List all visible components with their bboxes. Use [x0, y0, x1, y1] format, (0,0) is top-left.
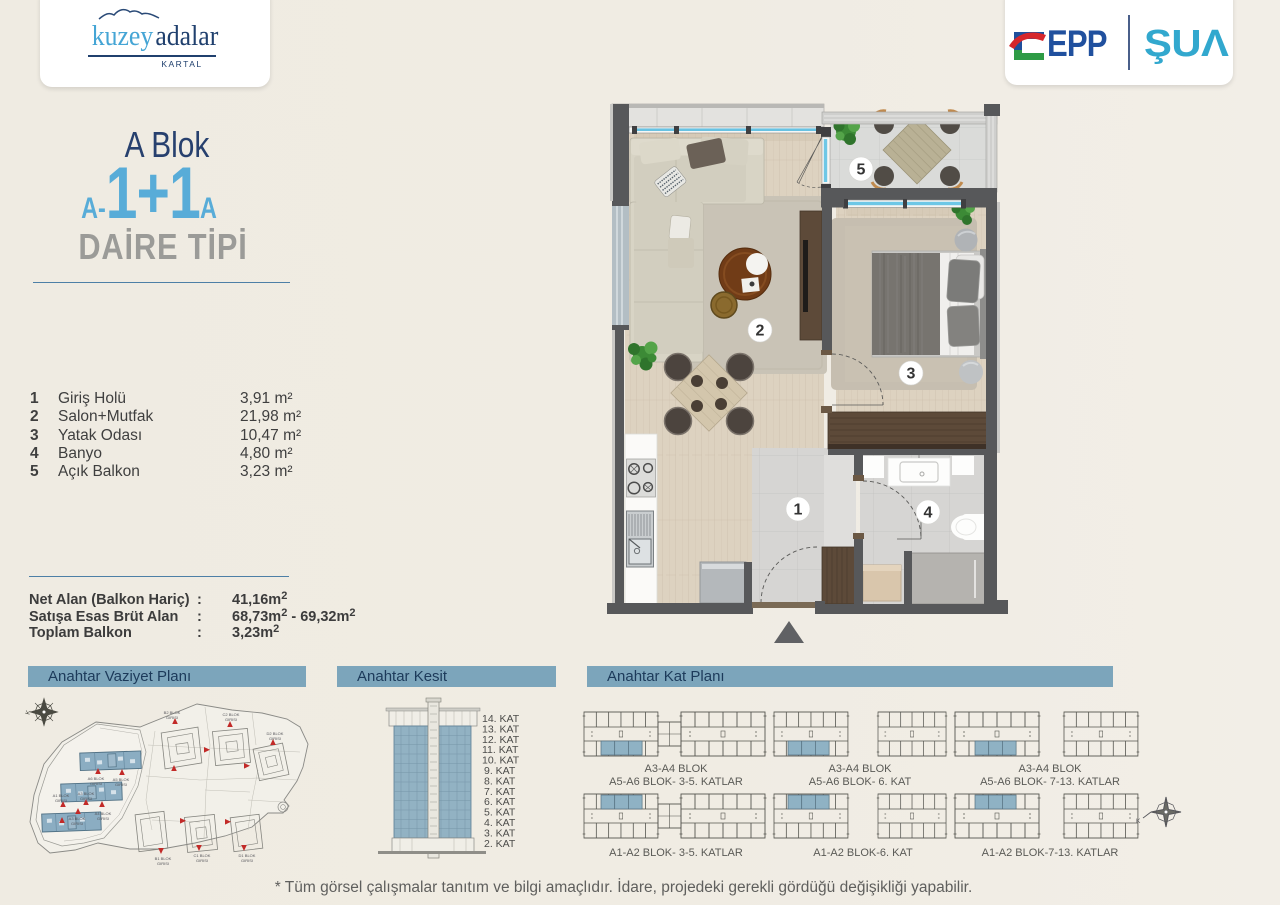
svg-text:GIRISI: GIRISI [71, 821, 83, 826]
svg-text:GIRISI: GIRISI [90, 781, 102, 786]
svg-text:GIRISI: GIRISI [157, 861, 169, 866]
svg-text:GIRISI: GIRISI [269, 736, 281, 741]
svg-text:GIRISI: GIRISI [80, 796, 92, 801]
svg-text:K: K [25, 709, 33, 716]
svg-text:A5-A6 BLOK- 3-5. KATLAR: A5-A6 BLOK- 3-5. KATLAR [609, 776, 743, 788]
svg-text:GIRISI: GIRISI [115, 782, 127, 787]
svg-text:A5-A6 BLOK- 7-13. KATLAR: A5-A6 BLOK- 7-13. KATLAR [980, 776, 1120, 788]
svg-text:A1-A2 BLOK- 3-5. KATLAR: A1-A2 BLOK- 3-5. KATLAR [609, 847, 743, 859]
svg-text:A1-A2 BLOK-6. KAT: A1-A2 BLOK-6. KAT [813, 847, 913, 859]
svg-text:GIRISI: GIRISI [166, 715, 178, 720]
svg-text:GIRISI: GIRISI [196, 858, 208, 863]
svg-text:GIRISI: GIRISI [225, 717, 237, 722]
svg-text:4: 4 [924, 505, 933, 522]
svg-text:GIRISI: GIRISI [241, 858, 253, 863]
svg-text:1: 1 [794, 502, 803, 519]
svg-text:A1-A2 BLOK-7-13. KATLAR: A1-A2 BLOK-7-13. KATLAR [982, 847, 1119, 859]
svg-text:2. KAT: 2. KAT [484, 838, 516, 850]
svg-text:K: K [1136, 818, 1141, 825]
svg-text:A5-A6 BLOK- 6. KAT: A5-A6 BLOK- 6. KAT [809, 776, 912, 788]
svg-text:A3-A4 BLOK: A3-A4 BLOK [829, 763, 893, 775]
svg-text:A3-A4 BLOK: A3-A4 BLOK [645, 763, 709, 775]
svg-text:2: 2 [756, 323, 765, 340]
svg-text:A3-A4 BLOK: A3-A4 BLOK [1019, 763, 1083, 775]
svg-text:5: 5 [857, 162, 866, 179]
svg-text:3: 3 [907, 366, 916, 383]
svg-text:GIRISI: GIRISI [55, 798, 67, 803]
svg-text:GIRISI: GIRISI [97, 816, 109, 821]
